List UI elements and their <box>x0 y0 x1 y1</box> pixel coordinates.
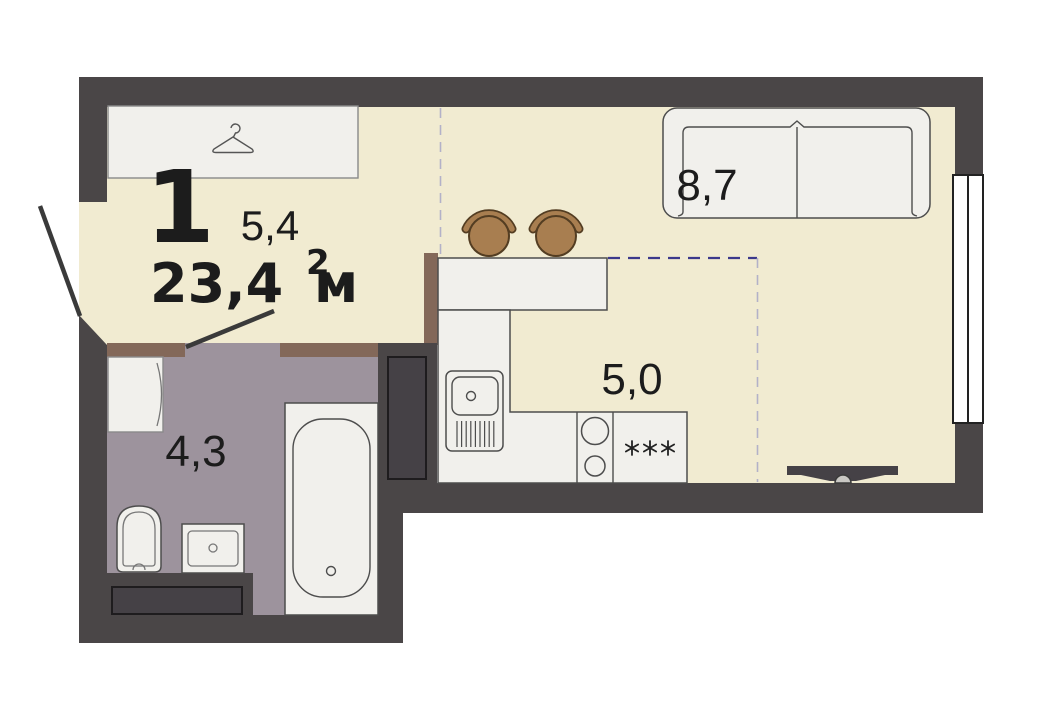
stool-seat <box>469 216 509 256</box>
stool-seat <box>536 216 576 256</box>
total-area-sup: 2 <box>306 243 330 283</box>
bathroom-sink <box>182 524 244 573</box>
floor-plan: 1 5,4 23,4 м 2 8,7 5,0 4,3 <box>0 0 1062 723</box>
kitchen-sink <box>446 371 503 451</box>
wall-top <box>79 77 983 107</box>
wall-left-lower <box>79 315 107 643</box>
type-number-label: 1 <box>145 149 215 266</box>
entry-door-leaf <box>40 206 80 316</box>
kitchen-area-label: 5,0 <box>601 355 662 404</box>
total-area-label: 23,4 <box>150 252 283 315</box>
vent-shaft-bathroom <box>112 587 242 614</box>
burner-icon <box>582 418 609 445</box>
bar-counter-top <box>438 258 607 310</box>
washing-machine <box>108 357 163 432</box>
bathroom-threshold-left <box>107 343 185 357</box>
hallway-area-label: 5,4 <box>241 202 299 249</box>
bathroom-threshold-right <box>280 343 378 357</box>
window <box>953 175 983 423</box>
bar-counter <box>438 258 607 310</box>
living-area-label: 8,7 <box>676 161 737 210</box>
bathroom-area-label: 4,3 <box>165 427 226 476</box>
bathtub <box>285 403 378 615</box>
floor-plan-canvas: 1 5,4 23,4 м 2 8,7 5,0 4,3 <box>0 0 1062 723</box>
wall-bottom-main <box>403 483 983 513</box>
wall-bathroom-right <box>378 483 403 643</box>
toilet <box>117 506 161 572</box>
wall-bathroom-bottom <box>79 615 403 643</box>
kitchen-partition-wall <box>424 253 438 345</box>
vent-shaft-kitchen <box>388 357 426 479</box>
burner-icon <box>585 456 605 476</box>
washing-machine-body <box>108 357 163 432</box>
wall-left-upper <box>79 77 107 202</box>
tv-screen <box>787 466 898 475</box>
wall-right-upper <box>955 107 983 175</box>
